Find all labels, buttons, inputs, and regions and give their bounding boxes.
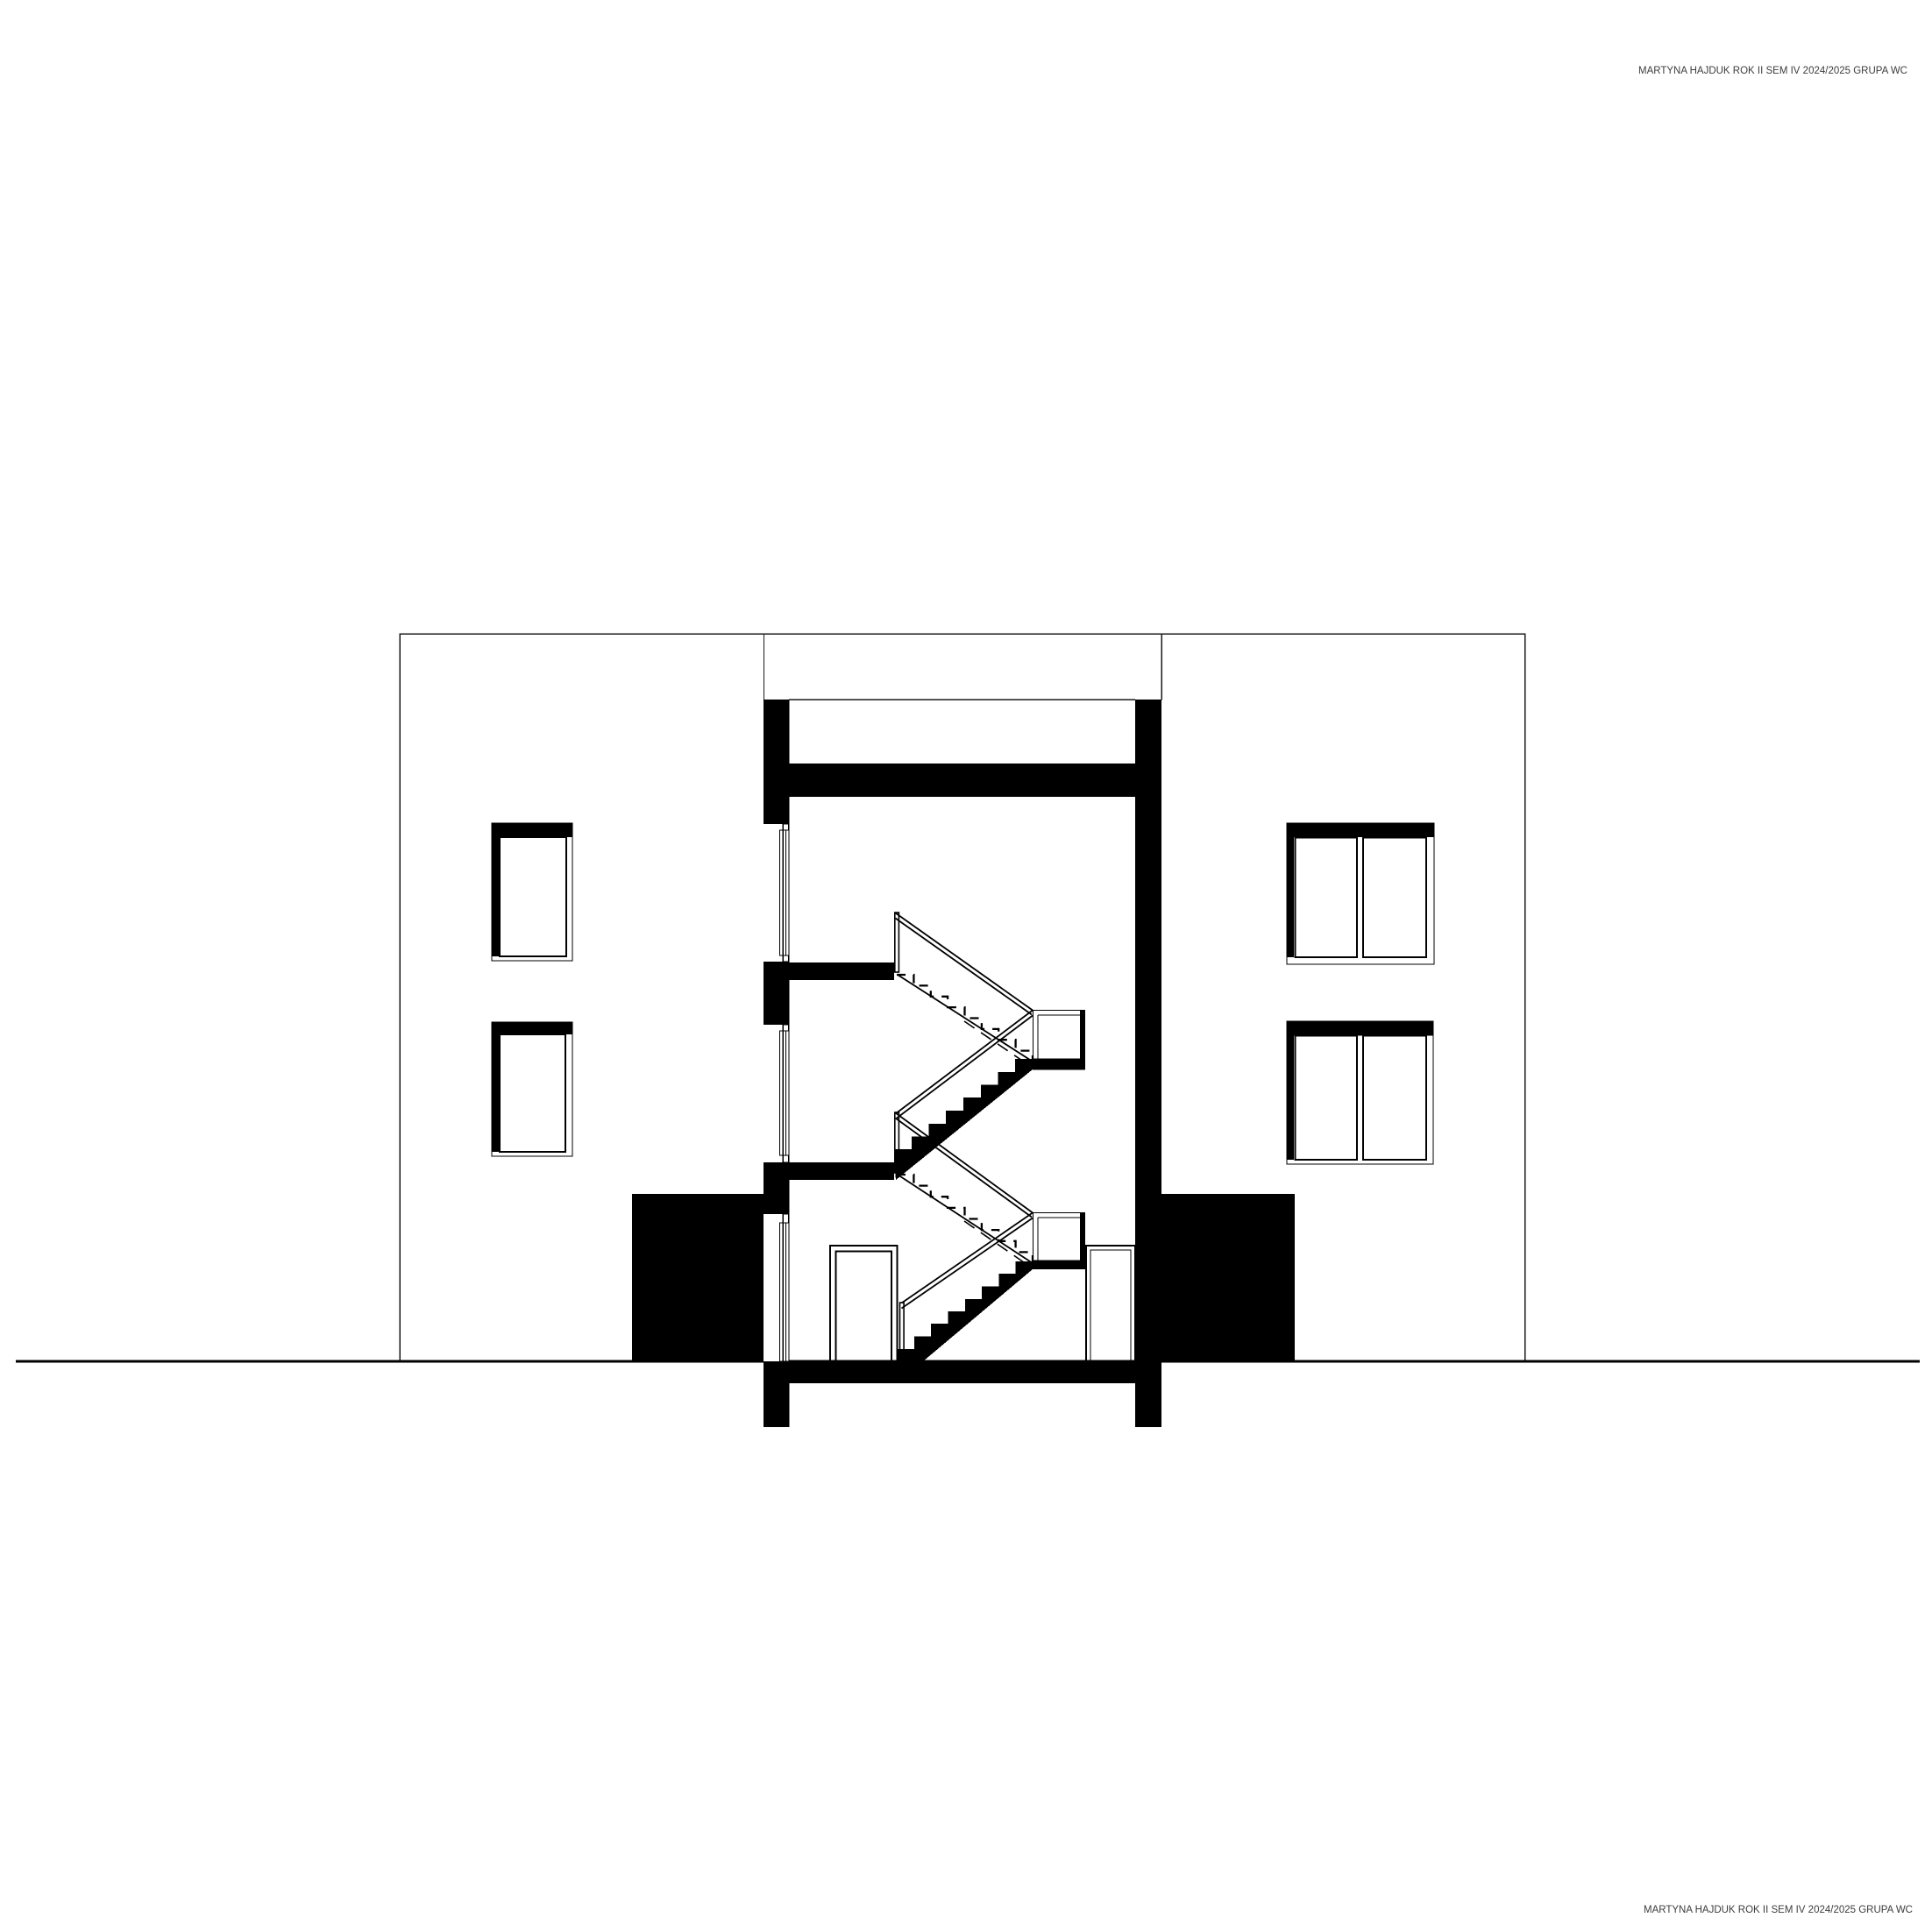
svg-text:MARTYNA HAJDUK ROK II SEM IV 2: MARTYNA HAJDUK ROK II SEM IV 2024/2025 G… bbox=[1638, 66, 1907, 76]
svg-text:MARTYNA HAJDUK ROK II SEM IV 2: MARTYNA HAJDUK ROK II SEM IV 2024/2025 G… bbox=[1644, 1905, 1913, 1915]
